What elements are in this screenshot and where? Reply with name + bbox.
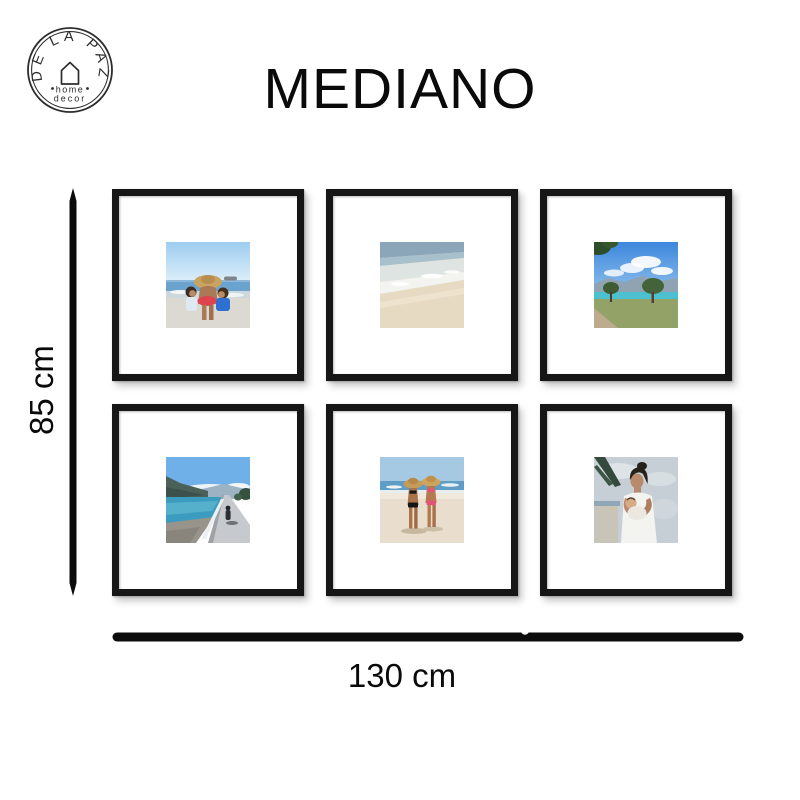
frame-grid: [112, 189, 732, 596]
photo-lakeside-park: [594, 242, 678, 328]
frame-top-center: [326, 189, 518, 381]
frame-mat: [333, 196, 511, 374]
width-dimension-line: [112, 629, 744, 645]
product-diagram: DE LA PAZ home decor MEDIANO: [0, 0, 800, 800]
frame-bottom-left: [112, 404, 304, 596]
photo-shoreline-waves: [380, 242, 464, 328]
frame-mat: [119, 196, 297, 374]
width-dimension-label: 130 cm: [302, 657, 502, 695]
frame-mat: [547, 411, 725, 589]
frame-mat: [119, 411, 297, 589]
page-title: MEDIANO: [0, 56, 800, 122]
frame-mat: [333, 411, 511, 589]
photo-two-women-beach: [380, 457, 464, 543]
frame-mat: [547, 196, 725, 374]
photo-family-beach: [166, 242, 250, 328]
photo-lake-road: [166, 457, 250, 543]
frame-top-right: [540, 189, 732, 381]
frame-top-left: [112, 189, 304, 381]
photo-mother-baby-beach: [594, 457, 678, 543]
height-dimension-label: 85 cm: [0, 330, 102, 450]
frame-bottom-center: [326, 404, 518, 596]
frame-bottom-right: [540, 404, 732, 596]
